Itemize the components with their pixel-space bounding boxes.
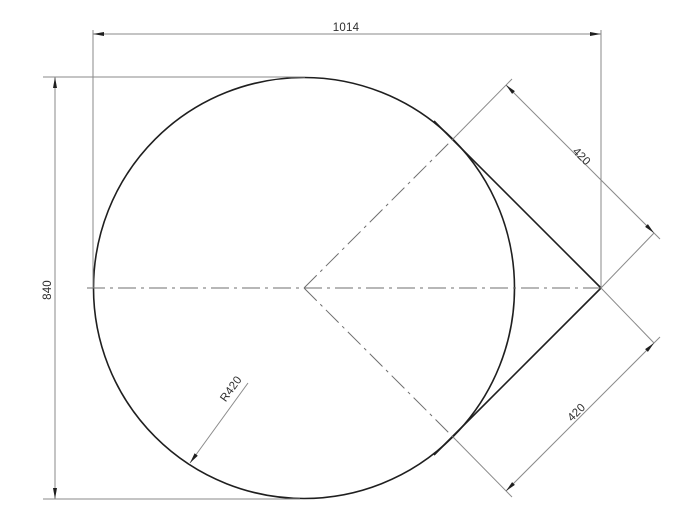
lower-tangent-line xyxy=(434,288,601,455)
centerlines xyxy=(87,134,601,442)
lower-tangent-dimension-label: 420 xyxy=(566,402,588,424)
height-arrow-bottom-icon xyxy=(53,488,57,499)
arrowheads xyxy=(53,32,654,499)
radius-dimension-label: R420 xyxy=(218,374,244,404)
dimension-labels: 1014 840 420 420 R420 xyxy=(42,22,592,424)
height-dimension-label: 840 xyxy=(42,280,54,300)
dimension-lines xyxy=(43,30,660,499)
width-dimension-label: 1014 xyxy=(333,22,360,34)
technical-drawing: 1014 840 420 420 R420 xyxy=(0,0,688,526)
lower-tangent-extension-apex xyxy=(601,288,654,343)
height-arrow-top-icon xyxy=(53,77,57,88)
upper-tangent-dimension-label: 420 xyxy=(570,146,592,168)
lower-tangent-extension-outer xyxy=(453,437,512,497)
radius-arrow-icon xyxy=(190,453,198,463)
upper-radial-centerline xyxy=(304,134,458,288)
upper-tangent-extension-outer xyxy=(453,79,512,139)
drawing-canvas: 1014 840 420 420 R420 xyxy=(0,0,688,526)
width-arrow-left-icon xyxy=(93,32,104,36)
upper-tangent-line xyxy=(434,121,601,288)
upper-tangent-extension-apex xyxy=(601,233,654,288)
width-arrow-right-icon xyxy=(590,32,601,36)
lower-radial-centerline xyxy=(304,288,458,442)
